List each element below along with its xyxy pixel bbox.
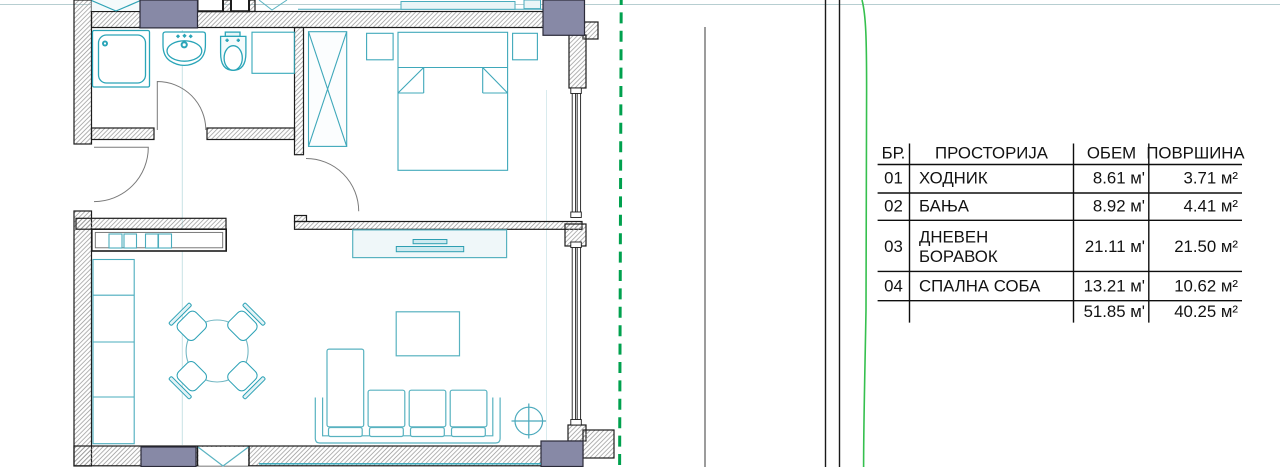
svg-text:ПОВРШИНА: ПОВРШИНА (1146, 144, 1245, 163)
svg-text:51.85 м': 51.85 м' (1084, 302, 1145, 321)
svg-text:21.50 м²: 21.50 м² (1174, 237, 1238, 256)
svg-text:ХОДНИК: ХОДНИК (919, 169, 988, 188)
svg-text:21.11 м': 21.11 м' (1085, 237, 1145, 256)
svg-text:40.25 м²: 40.25 м² (1174, 302, 1238, 321)
svg-text:ПРОСТОРИЈА: ПРОСТОРИЈА (935, 144, 1049, 163)
svg-text:БАЊА: БАЊА (919, 197, 970, 216)
svg-text:4.41 м²: 4.41 м² (1184, 197, 1239, 216)
svg-text:13.21 м': 13.21 м' (1084, 277, 1145, 296)
svg-text:04: 04 (884, 277, 903, 296)
svg-text:БР.: БР. (882, 144, 906, 163)
svg-text:03: 03 (884, 237, 903, 256)
svg-text:ОБЕМ: ОБЕМ (1087, 144, 1136, 163)
svg-text:10.62 м²: 10.62 м² (1174, 277, 1238, 296)
svg-text:8.61 м': 8.61 м' (1093, 169, 1145, 188)
svg-text:БОРАВОК: БОРАВОК (919, 247, 998, 266)
svg-text:СПАЛНА СОБА: СПАЛНА СОБА (919, 277, 1041, 296)
svg-text:ДНЕВЕН: ДНЕВЕН (919, 227, 988, 246)
svg-text:01: 01 (884, 169, 903, 188)
svg-text:3.71 м²: 3.71 м² (1184, 169, 1239, 188)
svg-text:8.92 м': 8.92 м' (1093, 197, 1145, 216)
svg-text:02: 02 (884, 197, 903, 216)
